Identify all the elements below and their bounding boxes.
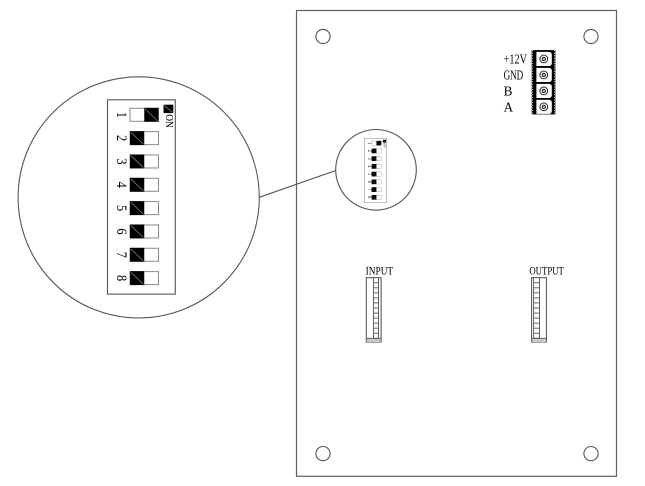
svg-text:ON: ON bbox=[382, 143, 386, 148]
svg-text:+12V: +12V bbox=[504, 51, 528, 66]
svg-text:5: 5 bbox=[113, 205, 129, 211]
svg-text:7: 7 bbox=[113, 252, 129, 258]
svg-text:A: A bbox=[504, 99, 514, 114]
svg-text:4: 4 bbox=[113, 182, 129, 189]
svg-text:ON: ON bbox=[163, 114, 174, 128]
svg-text:OUTPUT: OUTPUT bbox=[529, 266, 564, 278]
svg-text:INPUT: INPUT bbox=[366, 266, 394, 278]
svg-text:3: 3 bbox=[113, 158, 129, 164]
svg-text:B: B bbox=[504, 83, 513, 98]
svg-text:8: 8 bbox=[113, 275, 129, 281]
svg-text:2: 2 bbox=[113, 135, 129, 141]
svg-text:6: 6 bbox=[113, 228, 129, 234]
svg-text:1: 1 bbox=[113, 112, 129, 118]
svg-text:GND: GND bbox=[504, 67, 524, 82]
